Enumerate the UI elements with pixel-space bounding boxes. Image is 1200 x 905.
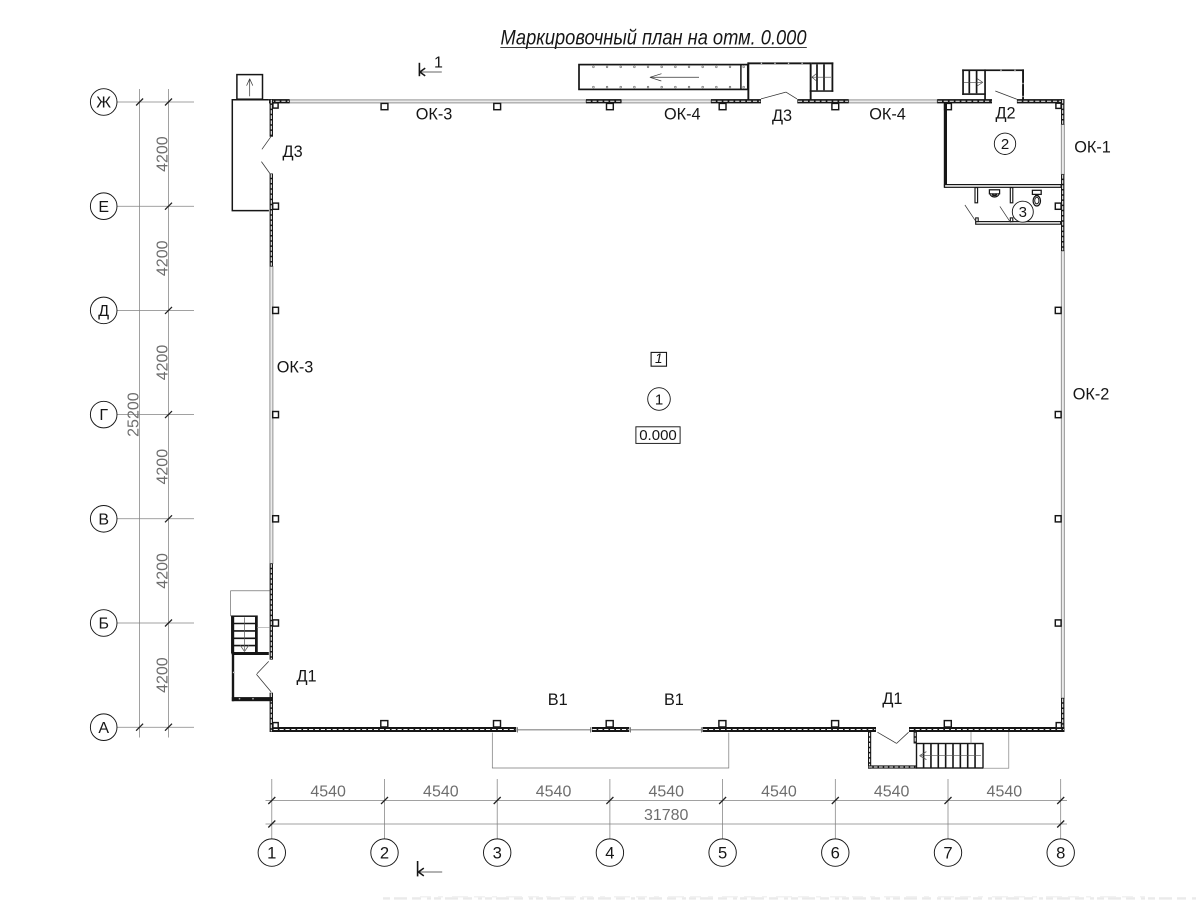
svg-text:Д1: Д1 [296,668,316,686]
svg-text:4540: 4540 [648,784,684,801]
svg-text:2: 2 [380,843,389,862]
svg-text:4200: 4200 [154,240,171,276]
svg-text:ОК-4: ОК-4 [869,105,906,123]
svg-text:4540: 4540 [310,784,346,801]
svg-text:Е: Е [98,199,109,216]
svg-text:Д3: Д3 [283,143,303,161]
svg-text:4200: 4200 [154,449,171,485]
svg-text:31780: 31780 [644,807,689,824]
svg-text:Маркировочный план на отм. 0.0: Маркировочный план на отм. 0.000 [501,27,807,50]
svg-text:4540: 4540 [536,784,572,801]
svg-text:ОК-2: ОК-2 [1073,385,1110,403]
svg-text:ОК-1: ОК-1 [1074,139,1111,157]
svg-text:6: 6 [831,843,840,862]
svg-text:4: 4 [605,843,614,862]
svg-text:Д2: Д2 [995,105,1015,123]
svg-text:4540: 4540 [874,784,910,801]
svg-text:В1: В1 [548,691,568,709]
svg-text:Д3: Д3 [772,107,792,125]
svg-text:8: 8 [1056,843,1065,862]
svg-text:3: 3 [1019,204,1027,221]
svg-text:4200: 4200 [154,553,171,589]
svg-text:ОК-4: ОК-4 [664,105,701,123]
svg-text:В: В [98,511,109,528]
svg-text:4540: 4540 [987,784,1023,801]
svg-text:0.000: 0.000 [639,427,677,444]
svg-text:4200: 4200 [154,136,171,172]
svg-text:А: А [98,720,109,737]
svg-text:Д: Д [98,303,109,320]
svg-text:Ж: Ж [96,95,111,112]
svg-text:4540: 4540 [761,784,797,801]
svg-text:4200: 4200 [154,657,171,693]
svg-text:1: 1 [655,391,663,408]
svg-text:Г: Г [99,407,108,424]
svg-text:5: 5 [718,843,727,862]
svg-text:4200: 4200 [154,345,171,381]
svg-text:1: 1 [267,843,276,862]
svg-text:ОК-3: ОК-3 [277,358,314,376]
svg-text:3: 3 [493,843,502,862]
svg-text:Б: Б [98,616,109,633]
svg-text:Д1: Д1 [882,690,902,708]
svg-text:В1: В1 [664,691,684,709]
svg-text:4540: 4540 [423,784,459,801]
svg-text:1: 1 [434,55,443,72]
svg-text:25200: 25200 [126,392,143,437]
svg-text:2: 2 [1001,136,1009,153]
svg-text:7: 7 [943,843,952,862]
svg-text:1: 1 [655,351,663,366]
svg-text:ОК-3: ОК-3 [416,105,453,123]
